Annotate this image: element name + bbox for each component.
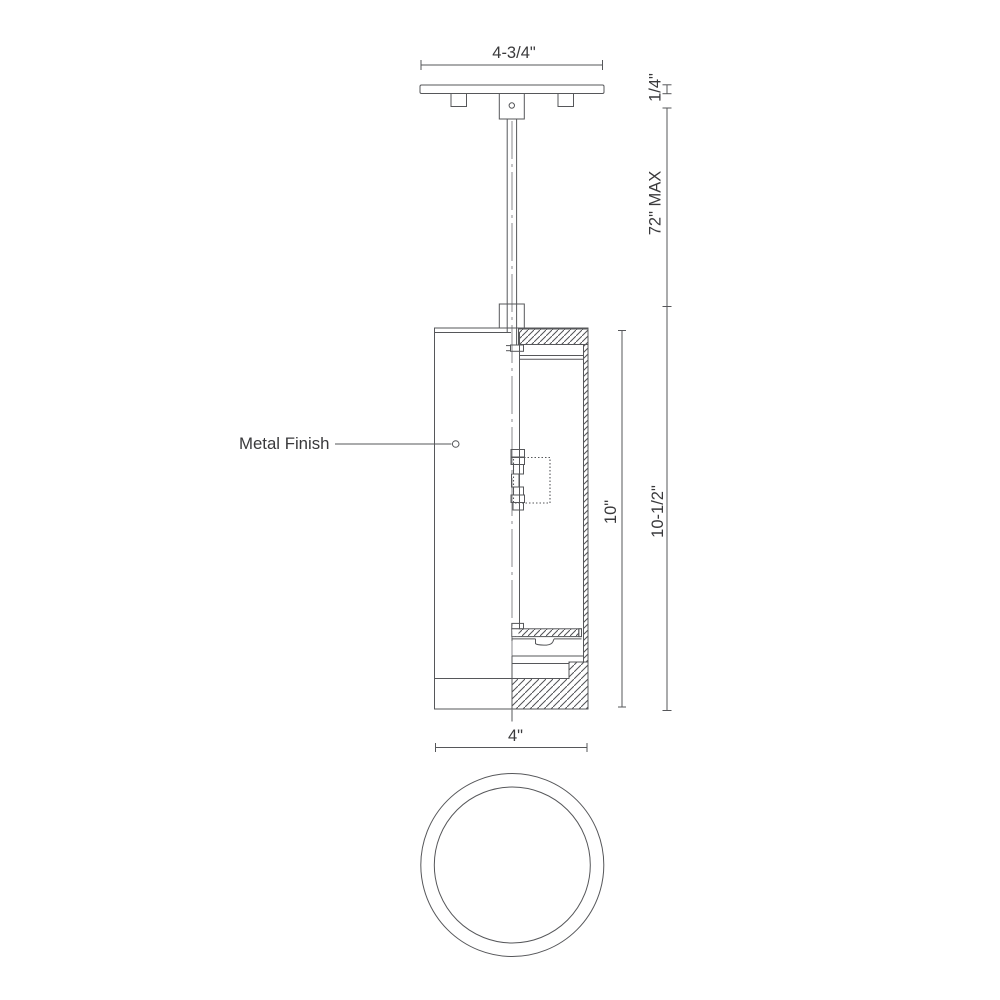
svg-text:1/4": 1/4" bbox=[647, 73, 665, 102]
svg-text:Metal Finish: Metal Finish bbox=[239, 434, 329, 453]
svg-text:4-3/4": 4-3/4" bbox=[492, 44, 536, 62]
svg-text:4": 4" bbox=[508, 727, 523, 745]
svg-text:72" MAX: 72" MAX bbox=[647, 171, 665, 236]
svg-text:10-1/2": 10-1/2" bbox=[649, 485, 667, 538]
svg-text:10": 10" bbox=[602, 500, 620, 524]
